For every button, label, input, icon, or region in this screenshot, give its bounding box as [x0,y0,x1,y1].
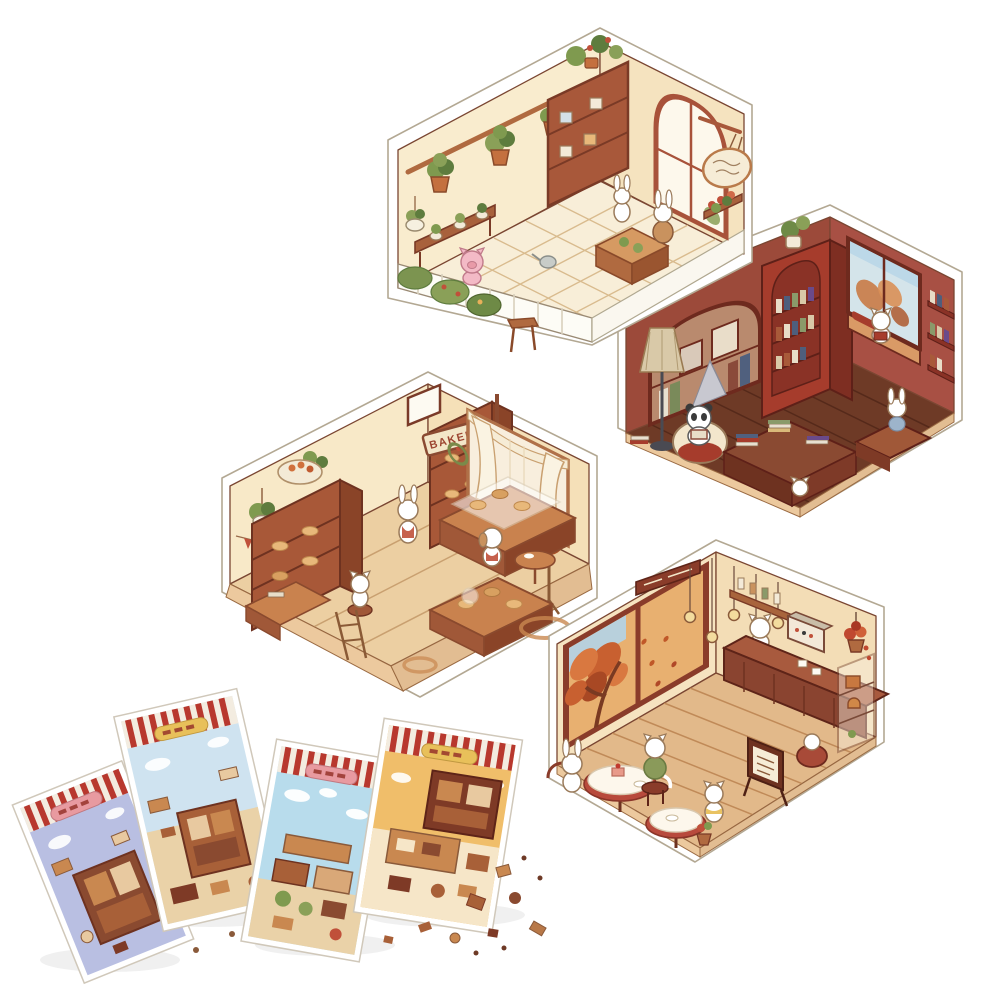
cafe-room [548,540,990,868]
sticker-sheet-4 [354,718,523,933]
product-photo: BAKERY [0,0,1000,1000]
rack-top-plant [566,46,586,66]
box-item [846,676,860,688]
wooden-stool [508,318,538,352]
sticker-sheets [12,689,546,983]
floor-book-stack [630,436,649,444]
miniature-rooms-scene: BAKERY [0,0,1000,1000]
cat-on-floor [791,477,809,496]
bakery-room: BAKERY [110,372,597,731]
pig-character [460,248,484,285]
bag-item [848,698,860,708]
glass-dome [462,588,478,604]
cat-on-window-seat [871,308,891,343]
glass-rack [838,654,874,752]
